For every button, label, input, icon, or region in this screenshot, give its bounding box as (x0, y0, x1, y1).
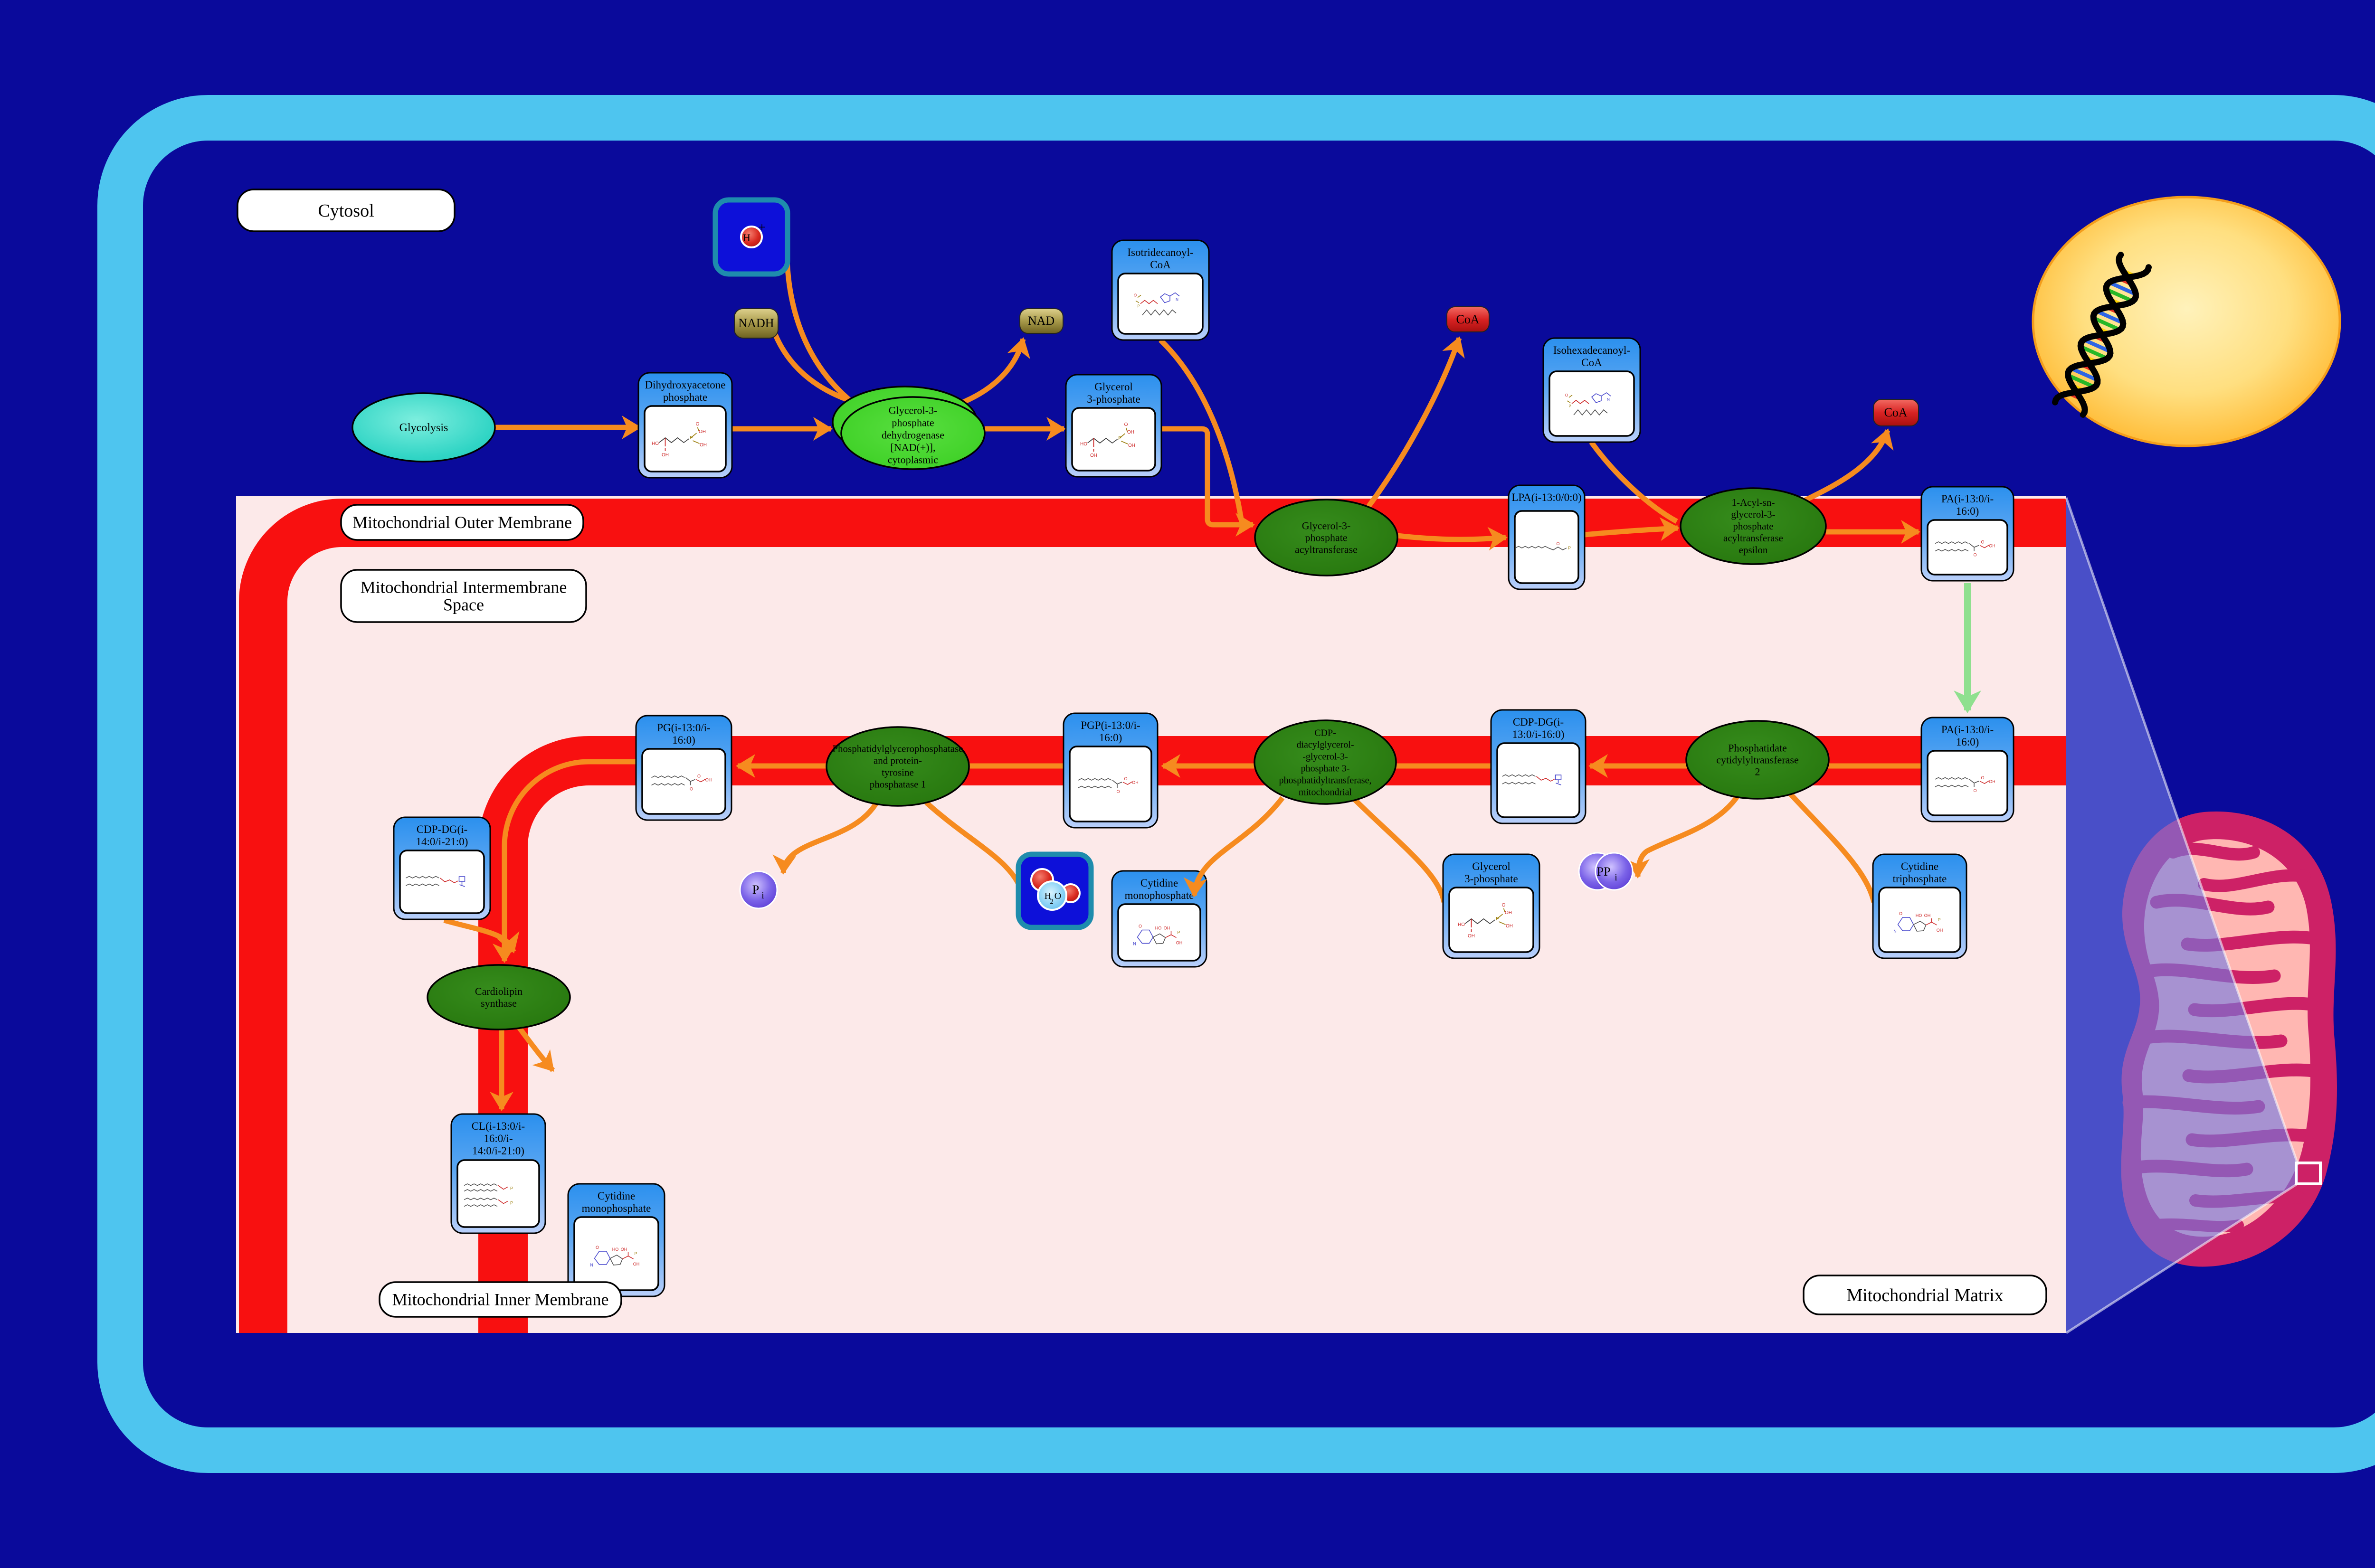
svg-text:Isohexadecanoyl-: Isohexadecanoyl- (1553, 344, 1630, 356)
svg-text:Mitochondrial Inner Membrane: Mitochondrial Inner Membrane (392, 1290, 609, 1309)
svg-text:16:0): 16:0) (1956, 505, 1979, 517)
svg-text:Glycolysis: Glycolysis (399, 422, 448, 434)
svg-text:P: P (752, 883, 759, 897)
svg-text:2: 2 (1050, 898, 1054, 906)
svg-text:Glycerol-3-: Glycerol-3- (1302, 520, 1351, 532)
svg-text:NADH: NADH (738, 316, 774, 330)
svg-text:Cardiolipin: Cardiolipin (475, 985, 522, 997)
svg-text:2: 2 (1755, 766, 1760, 778)
svg-text:Isotridecanoyl-: Isotridecanoyl- (1127, 246, 1193, 258)
svg-text:CoA: CoA (1884, 406, 1907, 419)
svg-text:phosphate 3-: phosphate 3- (1301, 763, 1350, 774)
svg-text:cytoplasmic: cytoplasmic (888, 454, 939, 466)
svg-text:14:0/i-21:0): 14:0/i-21:0) (472, 1145, 524, 1157)
svg-text:PP: PP (1597, 865, 1611, 878)
svg-text:Glycerol-3-: Glycerol-3- (889, 405, 938, 416)
svg-text:CoA: CoA (1150, 259, 1171, 271)
svg-text:diacylglycerol-: diacylglycerol- (1296, 739, 1354, 750)
svg-text:epsilon: epsilon (1739, 544, 1768, 556)
svg-text:PGP(i-13:0/i-: PGP(i-13:0/i- (1081, 719, 1140, 731)
svg-text:H: H (743, 232, 750, 244)
svg-text:Glycerol: Glycerol (1094, 381, 1132, 393)
svg-text:3-phosphate: 3-phosphate (1464, 873, 1518, 885)
svg-text:Mitochondrial Outer Membrane: Mitochondrial Outer Membrane (352, 513, 572, 532)
svg-text:phosphate: phosphate (1305, 532, 1347, 544)
svg-text:16:0): 16:0) (672, 734, 695, 746)
svg-text:phosphate: phosphate (663, 391, 707, 403)
svg-text:13:0/i-16:0): 13:0/i-16:0) (1512, 728, 1565, 740)
svg-text:Phosphatidylglycerophosphatase: Phosphatidylglycerophosphatase (832, 743, 963, 755)
svg-text:Mitochondrial Matrix: Mitochondrial Matrix (1846, 1285, 2003, 1305)
svg-text:acyltransferase: acyltransferase (1295, 544, 1358, 556)
svg-text:cytidylyltransferase: cytidylyltransferase (1716, 754, 1799, 766)
svg-text:PA(i-13:0/i-: PA(i-13:0/i- (1941, 493, 1994, 505)
svg-text:and protein-: and protein- (874, 755, 922, 766)
svg-text:Dihydroxyacetone: Dihydroxyacetone (645, 379, 726, 391)
svg-text:tyrosine: tyrosine (882, 767, 914, 778)
svg-text:phosphatidyltransferase,: phosphatidyltransferase, (1279, 775, 1372, 785)
svg-text:PG(i-13:0/i-: PG(i-13:0/i- (657, 722, 710, 734)
svg-text:3-phosphate: 3-phosphate (1087, 393, 1140, 405)
svg-text:14:0/i-21:0): 14:0/i-21:0) (416, 836, 468, 848)
svg-text:CDP-: CDP- (1314, 727, 1336, 738)
svg-text:mitochondrial: mitochondrial (1299, 787, 1352, 797)
svg-text:Space: Space (443, 595, 484, 614)
svg-text:16:0): 16:0) (1099, 732, 1122, 744)
svg-text:Mitochondrial Intermembrane: Mitochondrial Intermembrane (361, 578, 567, 597)
svg-text:Cytidine: Cytidine (1901, 860, 1938, 872)
svg-text:Cytidine: Cytidine (1140, 877, 1178, 889)
svg-text:dehydrogenase: dehydrogenase (882, 429, 944, 441)
svg-text:-glycerol-3-: -glycerol-3- (1302, 751, 1348, 762)
svg-text:+: + (759, 220, 766, 234)
svg-text:triphosphate: triphosphate (1893, 873, 1947, 885)
svg-text:acyltransferase: acyltransferase (1723, 532, 1783, 544)
svg-text:phosphate: phosphate (892, 417, 934, 429)
svg-text:CL(i-13:0/i-: CL(i-13:0/i- (472, 1120, 525, 1132)
svg-text:monophosphate: monophosphate (582, 1202, 651, 1214)
svg-text:16:0): 16:0) (1956, 736, 1979, 748)
svg-text:Glycerol: Glycerol (1472, 860, 1510, 872)
svg-text:CoA: CoA (1456, 312, 1479, 326)
svg-text:i: i (761, 890, 764, 901)
svg-text:[NAD(+)],: [NAD(+)], (891, 442, 936, 453)
svg-text:NAD: NAD (1028, 314, 1054, 328)
svg-text:phosphatase 1: phosphatase 1 (870, 779, 926, 790)
svg-text:Cytosol: Cytosol (318, 201, 374, 221)
svg-text:LPA(i-13:0/0:0): LPA(i-13:0/0:0) (1511, 491, 1581, 503)
svg-text:CDP-DG(i-: CDP-DG(i- (417, 823, 467, 835)
svg-text:synthase: synthase (481, 997, 517, 1009)
svg-text:i: i (1615, 872, 1617, 883)
svg-text:monophosphate: monophosphate (1125, 889, 1194, 901)
svg-text:CoA: CoA (1581, 357, 1602, 368)
svg-text:1-Acyl-sn-: 1-Acyl-sn- (1732, 497, 1775, 508)
svg-text:16:0/i-: 16:0/i- (484, 1133, 513, 1144)
svg-text:O: O (1054, 891, 1061, 901)
svg-text:Phosphatidate: Phosphatidate (1728, 742, 1786, 754)
svg-text:phosphate: phosphate (1733, 520, 1773, 532)
svg-text:glycerol-3-: glycerol-3- (1731, 509, 1775, 520)
svg-text:Cytidine: Cytidine (598, 1190, 635, 1202)
svg-text:CDP-DG(i-: CDP-DG(i- (1513, 716, 1564, 728)
svg-text:PA(i-13:0/i-: PA(i-13:0/i- (1941, 724, 1994, 736)
